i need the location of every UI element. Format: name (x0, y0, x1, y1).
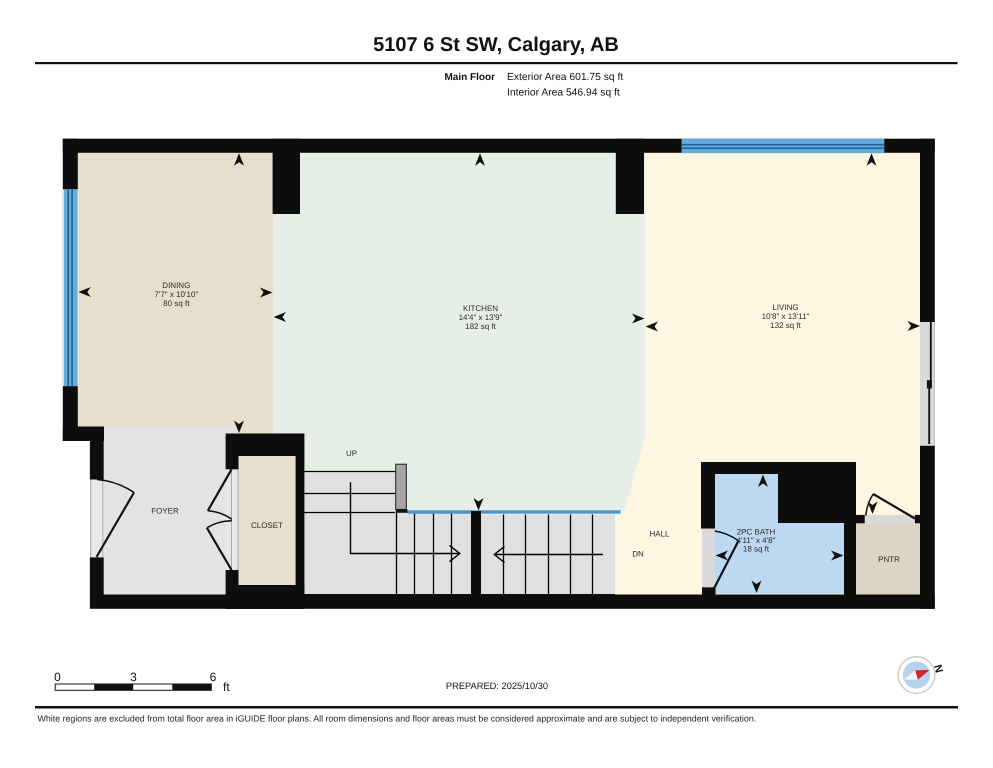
svg-text:HALL: HALL (649, 530, 670, 539)
svg-text:Interior Area 546.94 sq ft: Interior Area 546.94 sq ft (507, 88, 620, 99)
svg-text:6: 6 (210, 670, 217, 684)
svg-text:ft: ft (223, 680, 230, 694)
svg-text:14'4" x 13'9": 14'4" x 13'9" (459, 313, 503, 322)
svg-text:Exterior Area 601.75 sq ft: Exterior Area 601.75 sq ft (507, 72, 623, 83)
svg-text:132 sq ft: 132 sq ft (770, 321, 801, 330)
svg-text:3: 3 (130, 670, 137, 684)
svg-text:PREPARED: 2025/10/30: PREPARED: 2025/10/30 (446, 681, 548, 691)
svg-text:80 sq ft: 80 sq ft (163, 299, 190, 308)
svg-text:DN: DN (632, 550, 644, 559)
svg-text:N: N (931, 663, 945, 674)
svg-text:10'8" x 13'11": 10'8" x 13'11" (762, 312, 810, 321)
svg-text:5107 6 St SW, Calgary, AB: 5107 6 St SW, Calgary, AB (373, 34, 619, 56)
svg-text:LIVING: LIVING (772, 303, 798, 312)
svg-text:182 sq ft: 182 sq ft (465, 322, 496, 331)
svg-text:18 sq ft: 18 sq ft (743, 545, 770, 554)
svg-text:7'7" x 10'10": 7'7" x 10'10" (154, 290, 198, 299)
svg-text:0: 0 (54, 670, 61, 684)
svg-text:White regions are excluded fro: White regions are excluded from total fl… (38, 714, 757, 724)
svg-text:PNTR: PNTR (878, 555, 900, 564)
svg-text:UP: UP (346, 449, 357, 458)
svg-text:KITCHEN: KITCHEN (463, 304, 498, 313)
svg-text:DINING: DINING (162, 281, 190, 290)
svg-text:FOYER: FOYER (151, 507, 179, 516)
svg-text:CLOSET: CLOSET (251, 521, 283, 530)
svg-text:Main Floor: Main Floor (444, 72, 495, 83)
